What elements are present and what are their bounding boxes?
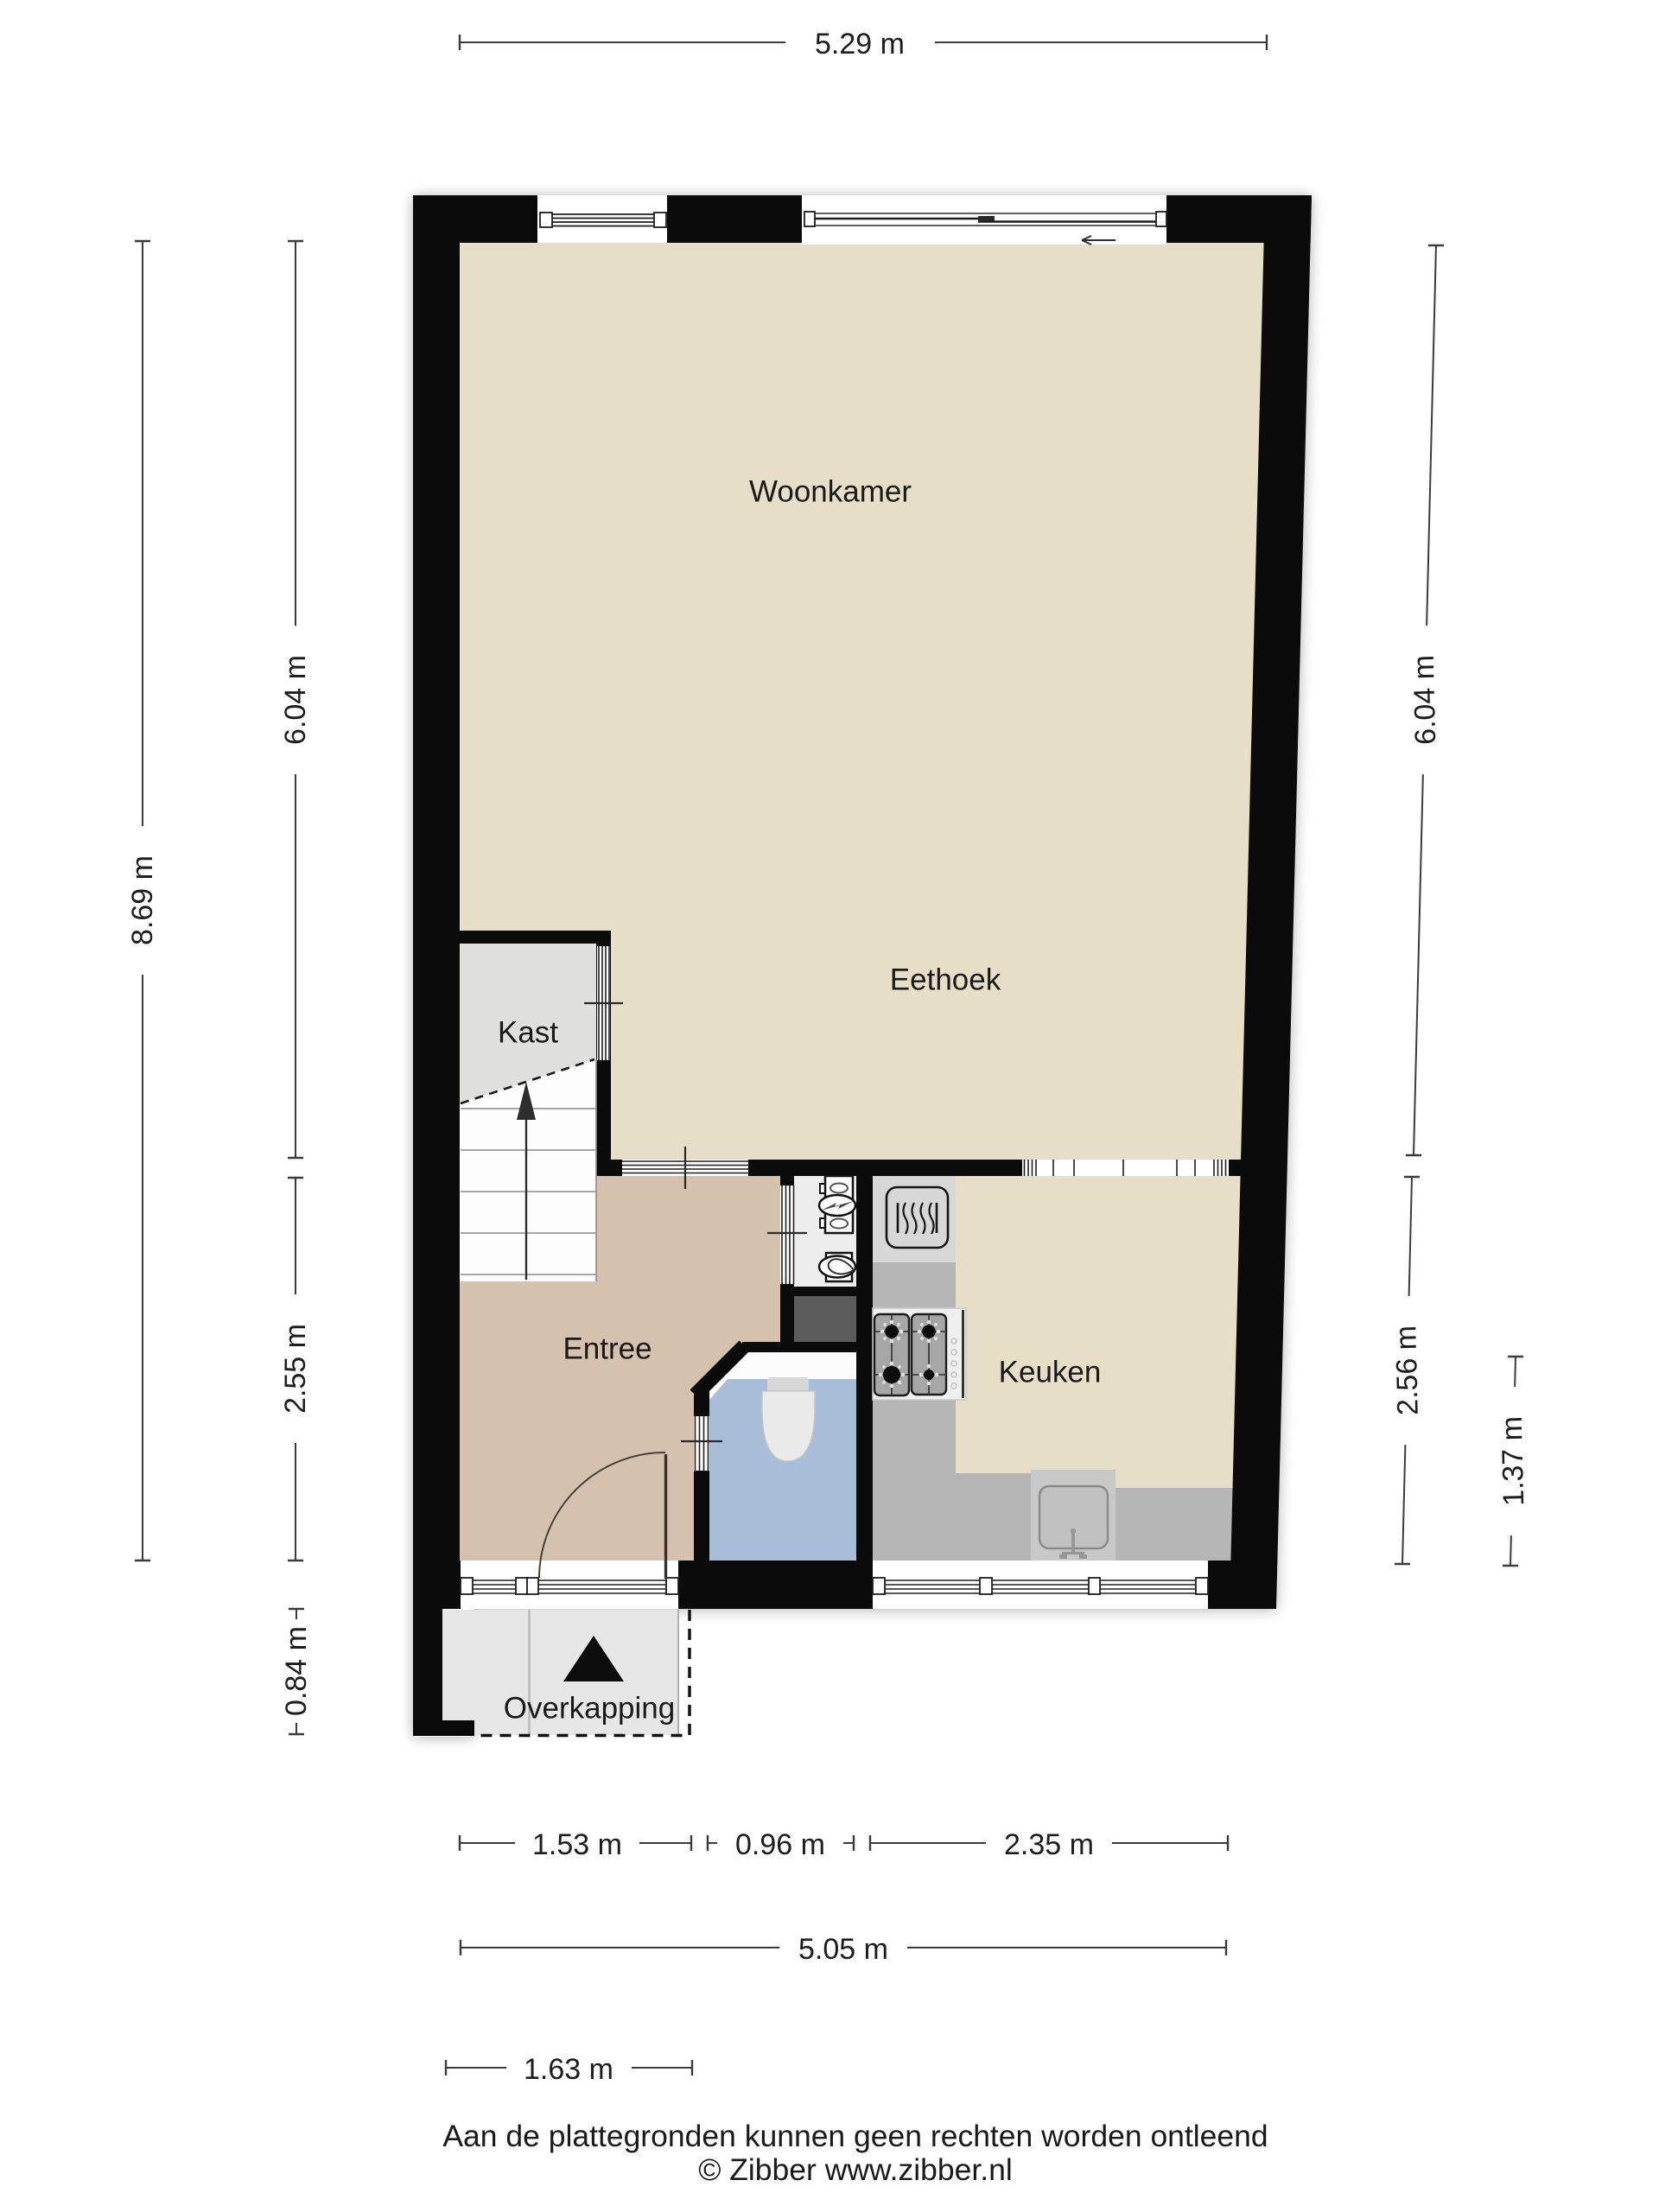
- svg-text:Kast: Kast: [498, 1016, 558, 1050]
- svg-text:1.63 m: 1.63 m: [524, 2053, 613, 2086]
- svg-text:Eethoek: Eethoek: [890, 963, 1001, 997]
- svg-text:5.29 m: 5.29 m: [815, 28, 905, 60]
- svg-text:Keuken: Keuken: [999, 1356, 1102, 1389]
- svg-text:8.69 m: 8.69 m: [126, 855, 159, 945]
- svg-text:Entree: Entree: [563, 1332, 652, 1366]
- svg-text:0.84 m: 0.84 m: [280, 1626, 313, 1716]
- svg-text:2.55 m: 2.55 m: [279, 1324, 312, 1414]
- svg-text:1.53 m: 1.53 m: [532, 1828, 622, 1861]
- svg-text:Overkapping: Overkapping: [504, 1692, 675, 1726]
- svg-text:2.35 m: 2.35 m: [1004, 1828, 1094, 1861]
- svg-text:1.37 m: 1.37 m: [1496, 1416, 1531, 1507]
- svg-text:Woonkamer: Woonkamer: [749, 475, 912, 509]
- svg-text:© Zibber www.zibber.nl: © Zibber www.zibber.nl: [698, 2152, 1013, 2187]
- svg-text:5.05 m: 5.05 m: [798, 1933, 888, 1966]
- svg-text:0.96 m: 0.96 m: [735, 1828, 825, 1861]
- svg-text:Aan de plattegronden kunnen ge: Aan de plattegronden kunnen geen rechten…: [442, 2119, 1268, 2153]
- svg-text:2.56 m: 2.56 m: [1389, 1325, 1425, 1416]
- svg-text:6.04 m: 6.04 m: [279, 655, 312, 745]
- svg-text:6.04 m: 6.04 m: [1408, 655, 1443, 746]
